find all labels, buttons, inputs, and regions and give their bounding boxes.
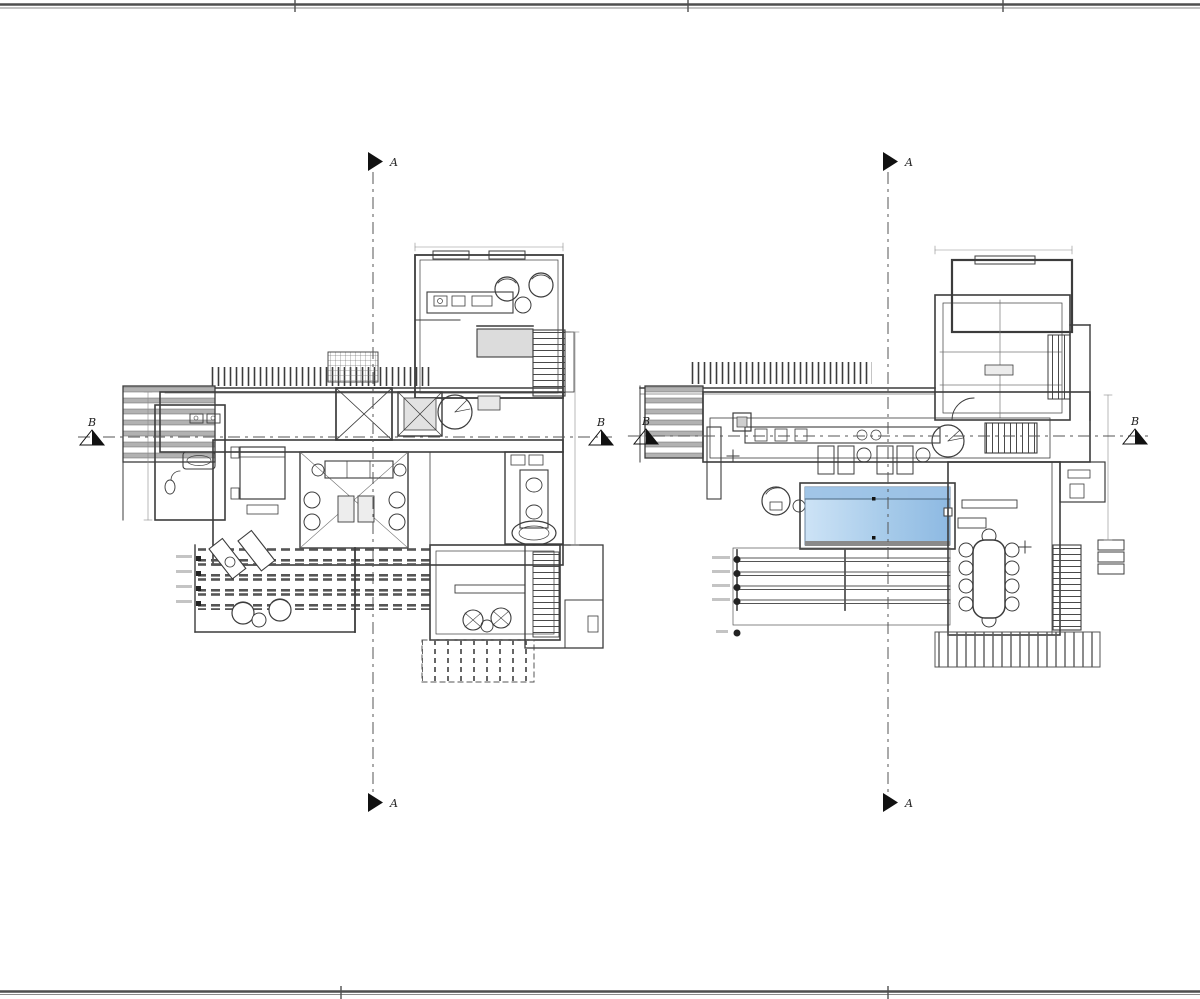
outdoor-kitchen [707, 413, 940, 499]
stair-core [328, 352, 500, 440]
louvre-block [123, 386, 215, 520]
left-floor-plan [123, 243, 603, 682]
timber-deck [935, 632, 1100, 667]
bidet [526, 505, 542, 519]
kitchen-counter [427, 292, 513, 313]
pergola-slats [690, 362, 872, 384]
pool-loungers [818, 446, 930, 474]
section-label-b: B [1130, 415, 1139, 428]
armchair [304, 514, 320, 530]
dashed-deck [422, 640, 534, 682]
level-callouts [176, 555, 201, 606]
garage-wing [932, 256, 1090, 457]
section-marker-a-bottom: A [368, 793, 398, 812]
section-line-a-left: A A [368, 152, 398, 812]
door-swing [952, 398, 974, 420]
section-marker-b-left: B [80, 416, 104, 445]
terrace-chairs [495, 273, 553, 313]
section-label-a: A [904, 797, 913, 810]
section-label-b: B [87, 416, 96, 429]
upper-wing [415, 251, 574, 398]
section-marker-a-top: A [883, 152, 913, 171]
section-label-b: B [596, 416, 605, 429]
sofa [325, 461, 393, 478]
sheet-border-top [0, 0, 1200, 12]
sheet-border-bottom [0, 986, 1200, 999]
section-line-b-right: B B [628, 415, 1150, 444]
pergola-slats [208, 367, 430, 386]
section-marker-b-right: B [589, 416, 613, 445]
oval-bathtub [512, 521, 556, 545]
section-marker-a-bottom: A [883, 793, 913, 812]
stair-treads [533, 330, 565, 396]
armchair [304, 492, 320, 508]
living-room [300, 452, 408, 548]
kitchen-island [477, 329, 533, 357]
bathroom-right [505, 452, 563, 545]
section-line-a-right: A A [883, 152, 913, 812]
armchair [389, 514, 405, 530]
survey-cross [727, 450, 739, 462]
toilet [526, 478, 542, 492]
section-label-a: A [904, 156, 913, 169]
section-label-a: A [389, 156, 398, 169]
skylight-grid [328, 352, 378, 382]
section-marker-b-right: B [1123, 415, 1147, 444]
section-marker-a-top: A [368, 152, 398, 171]
dining-room [948, 462, 1060, 635]
louvre-screen [1048, 335, 1070, 399]
survey-cross [1019, 541, 1031, 553]
terrace-levels [712, 548, 950, 637]
plan-canvas: A A B B A A [0, 0, 1200, 999]
bedroom-bed [231, 447, 285, 514]
coffee-table [338, 496, 354, 522]
dining-table [973, 540, 1005, 618]
right-floor-plan [628, 246, 1124, 667]
armchair [389, 492, 405, 508]
spa-jacuzzi [762, 487, 805, 515]
stair-run [985, 423, 1037, 453]
coffee-table [358, 496, 374, 522]
section-label-a: A [389, 797, 398, 810]
side-wing [525, 545, 603, 648]
drawing-sheet: A A B B A A [0, 0, 1200, 999]
section-label-b: B [641, 415, 650, 428]
side-table [252, 613, 266, 627]
east-stairs [1053, 462, 1124, 630]
swimming-pool [800, 483, 955, 549]
